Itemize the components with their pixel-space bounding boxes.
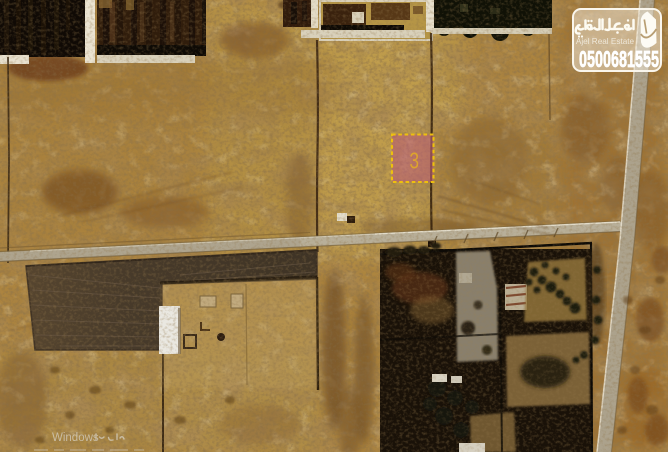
svg-text:0500681555: 0500681555 <box>579 46 659 72</box>
svg-text:Windows: Windows <box>52 432 99 444</box>
svg-text:Ajel Real Estate: Ajel Real Estate <box>576 37 635 46</box>
svg-text:3: 3 <box>410 148 420 174</box>
